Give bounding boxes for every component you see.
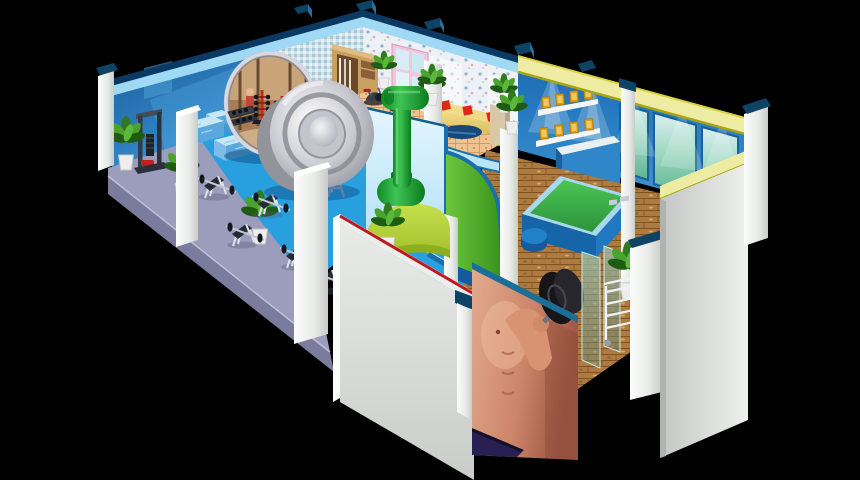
pouf bbox=[521, 228, 547, 252]
fitness-club-cutaway bbox=[0, 0, 860, 480]
glass-partition-1 bbox=[582, 252, 600, 368]
reception-end-column bbox=[500, 128, 518, 288]
front-pillar-c bbox=[294, 162, 331, 344]
sofa-pillow-2 bbox=[462, 105, 472, 115]
athlete-mural bbox=[472, 262, 589, 474]
illustration-canvas bbox=[0, 0, 860, 480]
front-pillar-b bbox=[176, 105, 201, 247]
right-end-wall bbox=[660, 150, 748, 458]
front-pillar-e bbox=[742, 98, 771, 246]
